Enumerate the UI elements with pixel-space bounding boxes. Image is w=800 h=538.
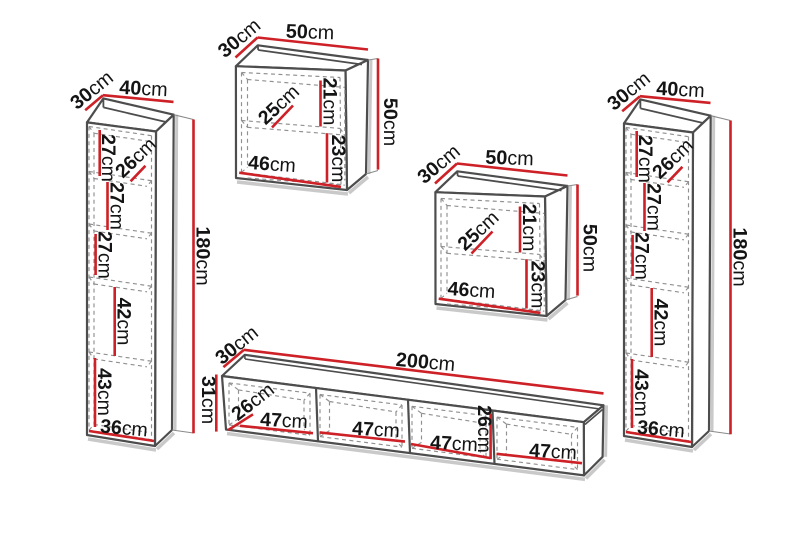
svg-text:21cm: 21cm (319, 78, 341, 126)
svg-text:27cm: 27cm (94, 231, 116, 279)
svg-text:50cm: 50cm (485, 147, 534, 171)
svg-text:50cm: 50cm (285, 21, 334, 45)
svg-text:47cm: 47cm (529, 440, 578, 464)
svg-text:46cm: 46cm (247, 152, 296, 177)
svg-text:40cm: 40cm (656, 78, 705, 103)
svg-text:27cm: 27cm (643, 183, 665, 231)
svg-text:40cm: 40cm (119, 77, 168, 102)
svg-text:42cm: 42cm (113, 298, 135, 346)
svg-text:180cm: 180cm (729, 227, 751, 286)
svg-text:27cm: 27cm (634, 135, 656, 183)
svg-text:46cm: 46cm (447, 278, 496, 303)
svg-text:23cm: 23cm (327, 135, 349, 183)
svg-text:50cm: 50cm (579, 224, 601, 272)
svg-text:42cm: 42cm (650, 299, 672, 347)
svg-text:23cm: 23cm (527, 261, 549, 309)
svg-text:43cm: 43cm (93, 368, 115, 416)
svg-text:27cm: 27cm (631, 232, 653, 280)
svg-text:47cm: 47cm (352, 418, 401, 442)
svg-text:36cm: 36cm (636, 416, 685, 442)
svg-text:180cm: 180cm (192, 226, 214, 285)
svg-text:47cm: 47cm (430, 432, 479, 456)
svg-text:36cm: 36cm (99, 415, 148, 441)
svg-text:50cm: 50cm (379, 98, 401, 146)
svg-text:31cm: 31cm (197, 376, 219, 424)
svg-text:27cm: 27cm (97, 134, 119, 182)
svg-text:43cm: 43cm (630, 369, 652, 417)
svg-text:27cm: 27cm (106, 182, 128, 230)
svg-text:47cm: 47cm (260, 409, 309, 433)
svg-text:21cm: 21cm (518, 204, 540, 252)
